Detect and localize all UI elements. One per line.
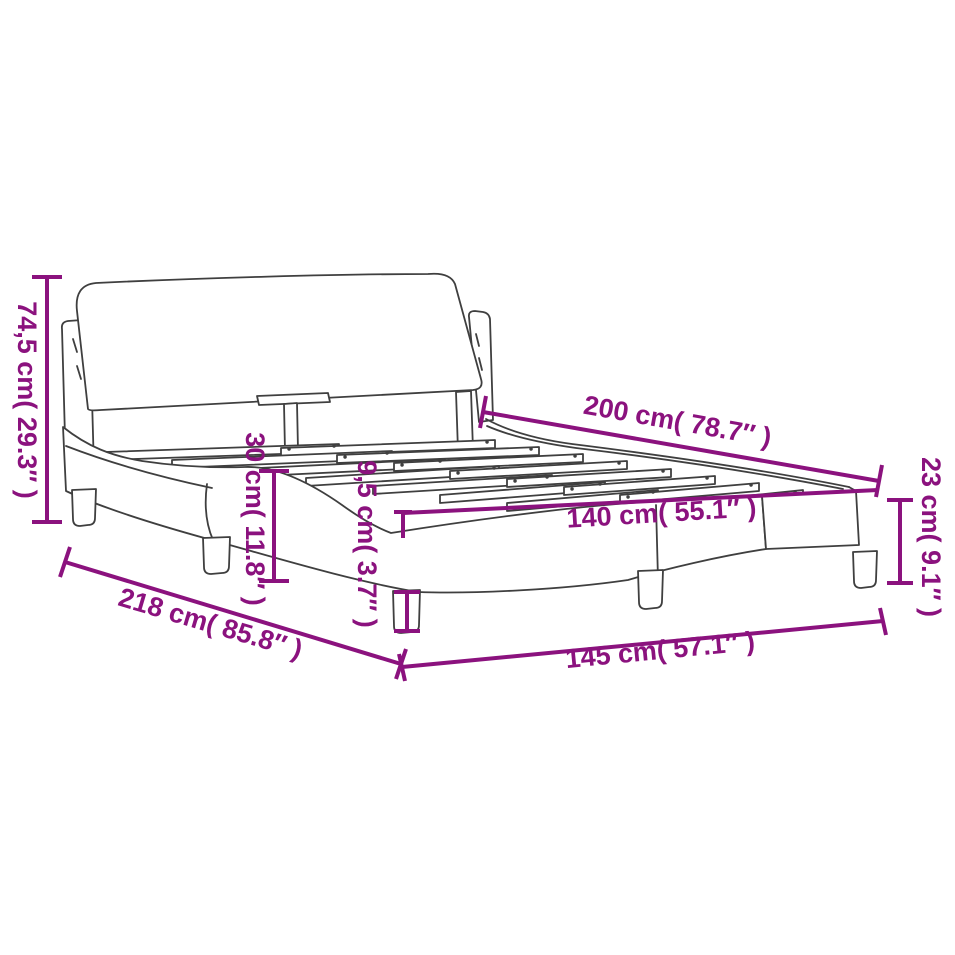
dimension-label-total-width: 145 cm( 57.1″ ) bbox=[564, 626, 756, 674]
bed-leg-front-right bbox=[638, 570, 663, 609]
bed-leg-foot bbox=[853, 551, 877, 588]
bed-frame-drawing bbox=[62, 274, 877, 633]
dimension-label-foot-frame-height: 23 cm( 9.1″ ) bbox=[916, 457, 946, 617]
dimension-total-height: 74,5 cm( 29.3″ ) bbox=[12, 277, 62, 522]
bed-leg-front-left bbox=[203, 537, 230, 574]
headboard-panel bbox=[77, 274, 482, 411]
foot-end-face bbox=[762, 491, 859, 549]
dimension-total-width: 145 cm( 57.1″ ) bbox=[399, 608, 886, 681]
bed-diagram-canvas: 74,5 cm( 29.3″ ) 218 cm( 85.8″ ) 200 cm(… bbox=[0, 0, 955, 955]
bed-leg-head-left bbox=[72, 489, 96, 526]
center-support-leg bbox=[284, 403, 298, 451]
dimension-label-rail-height: 30 cm( 11.8″ ) bbox=[240, 432, 270, 606]
dimension-label-leg-height: 9,5 cm( 3.7″ ) bbox=[352, 460, 382, 628]
dimension-diagram: 74,5 cm( 29.3″ ) 218 cm( 85.8″ ) 200 cm(… bbox=[0, 0, 955, 955]
dimension-label-total-height: 74,5 cm( 29.3″ ) bbox=[12, 301, 42, 499]
dimension-foot-frame-height: 23 cm( 9.1″ ) bbox=[887, 457, 946, 617]
dimension-label-inner-length: 200 cm( 78.7″ ) bbox=[581, 390, 773, 453]
dimension-label-total-length: 218 cm( 85.8″ ) bbox=[115, 582, 306, 665]
